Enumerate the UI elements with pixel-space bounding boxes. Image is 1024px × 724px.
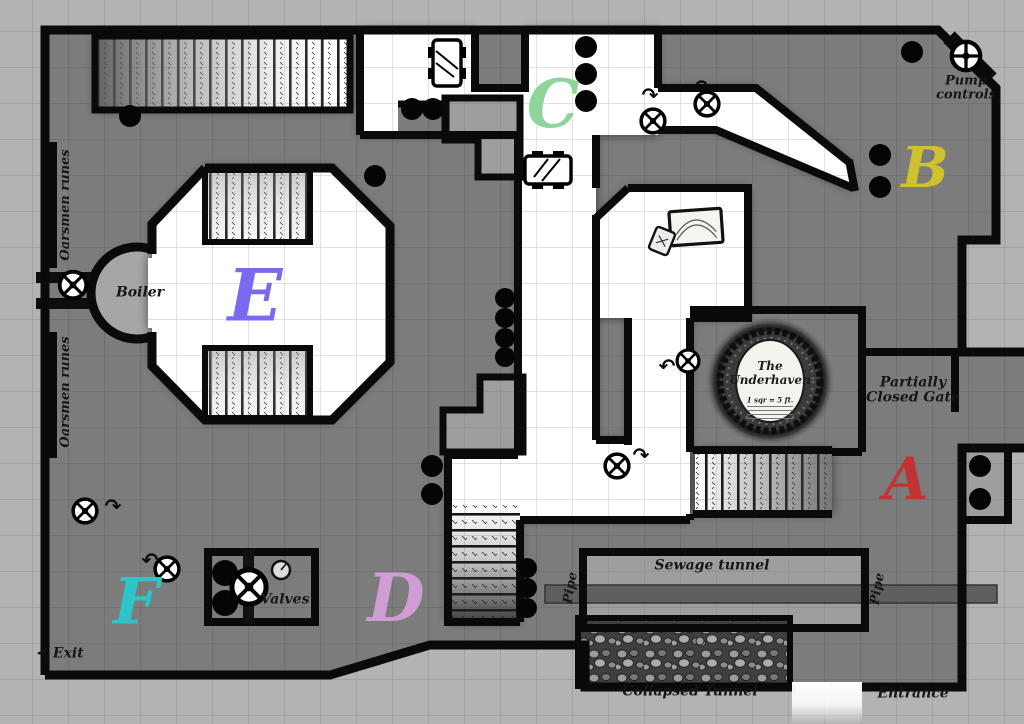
valve-wheel-icon [155, 557, 179, 581]
valve-wheel-icon [605, 454, 629, 478]
valve-wheel-icon [232, 570, 266, 604]
pebble [696, 637, 704, 645]
mine-cart-icon [525, 151, 571, 189]
pressure-gauge [272, 561, 290, 579]
entrance-glow [792, 682, 862, 724]
dungeon-map-canvas [0, 0, 1024, 724]
valve-wheel-icon [695, 92, 719, 116]
rune-wall [45, 332, 57, 458]
wall-block [475, 30, 525, 88]
mine-cart-icon [428, 40, 466, 86]
valve-wheel-icon [73, 499, 97, 523]
rune-wall [45, 142, 57, 268]
valve-wheel-icon [60, 272, 87, 299]
valve-wheel-icon [641, 109, 665, 133]
crest-fine-print [747, 406, 793, 419]
map-scale-note: 1 sqr = 5 ft. [747, 396, 794, 405]
valve-wheel-icon [677, 350, 699, 372]
sewage-pipe-band [545, 585, 997, 603]
map-title: The Underhaven [724, 360, 816, 388]
table-icon [669, 208, 723, 246]
dungeon-map: A B C D E F Pump controls Oarsmen runes … [0, 0, 1024, 724]
